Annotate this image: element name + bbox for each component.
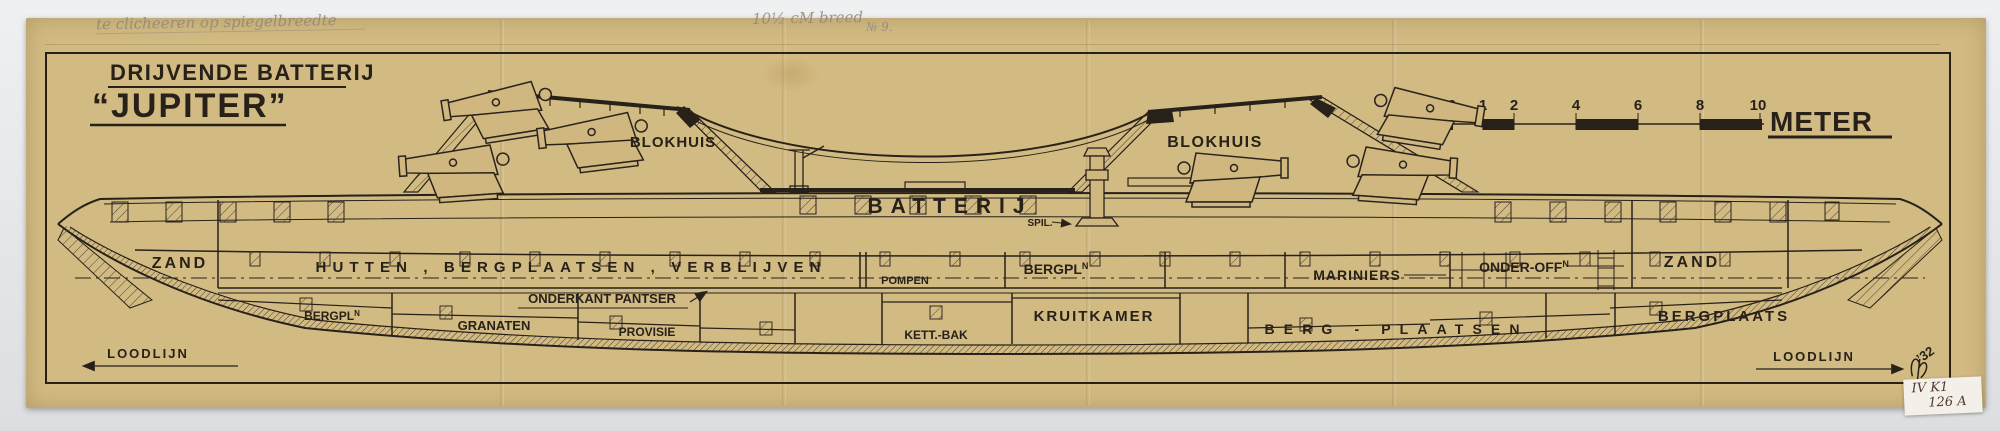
- label-kruitkamer: KRUITKAMER: [1034, 308, 1155, 325]
- cannon: [1178, 153, 1288, 207]
- label-spil: SPIL.: [1027, 218, 1052, 229]
- year-signature-text: ’32: [1914, 343, 1937, 366]
- label-provisie: PROVISIE: [619, 325, 676, 339]
- year-signature: ’32: [1902, 343, 1942, 381]
- label-bergpl-upper: BERGPLN: [1024, 261, 1089, 277]
- title-block: DRIJVENDE BATTERIJ “JUPITER”: [90, 60, 375, 125]
- label-berg-plaatsen: BERG - PLAATSEN: [1265, 321, 1520, 337]
- hull-bottom-band: [58, 224, 1942, 354]
- label-bergpl-lower: BERGPLN: [304, 309, 360, 323]
- scale-tick-label: 6: [1634, 97, 1642, 114]
- label-granaten: GRANATEN: [458, 318, 531, 333]
- page-subtitle: “JUPITER”: [92, 87, 288, 125]
- scanned-drawing: DRIJVENDE BATTERIJ “JUPITER” 0 1 2 4 6 8…: [0, 0, 2000, 431]
- scale-tick-label: 4: [1572, 97, 1581, 114]
- label-kett-bak: KETT.-BAK: [904, 328, 968, 342]
- label-bergpl-lower-sup: N: [354, 309, 360, 318]
- label-zand-right: ZAND: [1664, 254, 1720, 271]
- scale-tick-label: 8: [1696, 97, 1704, 114]
- scale-tick-label: 10: [1750, 97, 1767, 114]
- label-blokhuis-right: BLOKHUIS: [1167, 134, 1263, 151]
- label-loodlijn-left: LOODLIJN: [107, 346, 189, 361]
- pencil-annotation-number: № 9.: [866, 20, 893, 34]
- label-bergpl-upper-sup: N: [1082, 261, 1089, 271]
- label-bergplaats: BERGPLAATS: [1658, 308, 1790, 325]
- cannon: [398, 144, 511, 206]
- scale-unit-label: METER: [1770, 106, 1873, 137]
- label-onderkant-pantser: ONDERKANT PANTSER: [528, 291, 676, 306]
- label-blokhuis-left: BLOKHUIS: [630, 134, 716, 151]
- archive-sticker: IV K1 126 A: [1903, 376, 1982, 415]
- page-title: DRIJVENDE BATTERIJ: [110, 60, 375, 85]
- label-onder-off-sup: N: [1562, 259, 1569, 269]
- scale-tick-label: 2: [1510, 97, 1518, 114]
- label-mariniers: MARINIERS: [1313, 267, 1401, 283]
- label-bergpl-lower-base: BERGPL: [304, 309, 354, 323]
- scale-bar: 0 1 2 4 6 8 10 METER: [1446, 97, 1892, 137]
- label-onder-off-base: ONDER-OFF: [1479, 259, 1563, 275]
- label-onder-off: ONDER-OFFN: [1479, 259, 1569, 275]
- label-zand-left: ZAND: [152, 255, 208, 272]
- label-pompen: POMPEN: [881, 275, 929, 287]
- label-loodlijn-right: LOODLIJN: [1773, 349, 1855, 364]
- pencil-annotation-center: 10½ cM breed: [752, 8, 863, 28]
- label-bergpl-upper-base: BERGPL: [1024, 261, 1083, 277]
- label-batterij: BATTERIJ: [867, 195, 1032, 218]
- ship-drawing: DRIJVENDE BATTERIJ “JUPITER” 0 1 2 4 6 8…: [0, 0, 2000, 431]
- archive-sticker-line2: 126 A: [1928, 393, 1983, 410]
